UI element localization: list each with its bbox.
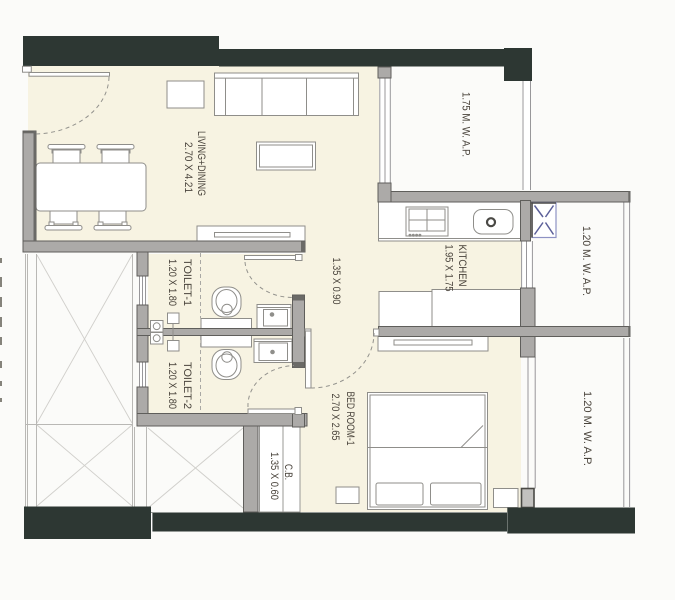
svg-text:1.35 X 0.90: 1.35 X 0.90 (330, 258, 342, 305)
svg-text:KITCHEN1.95 X 1.75: KITCHEN1.95 X 1.75 (443, 245, 469, 292)
svg-text:1.75 M. W. A.P.: 1.75 M. W. A.P. (460, 92, 472, 157)
svg-text:1.20 M. W. A.P.: 1.20 M. W. A.P. (580, 226, 592, 296)
svg-text:1.20 M. W. A.P.: 1.20 M. W. A.P. (581, 391, 593, 466)
